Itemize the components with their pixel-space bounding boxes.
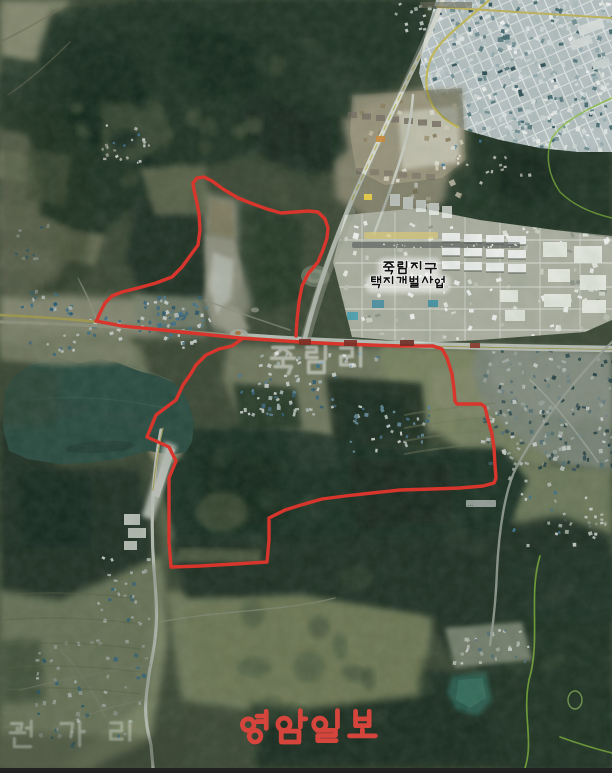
svg-text:...: ... xyxy=(468,502,473,508)
